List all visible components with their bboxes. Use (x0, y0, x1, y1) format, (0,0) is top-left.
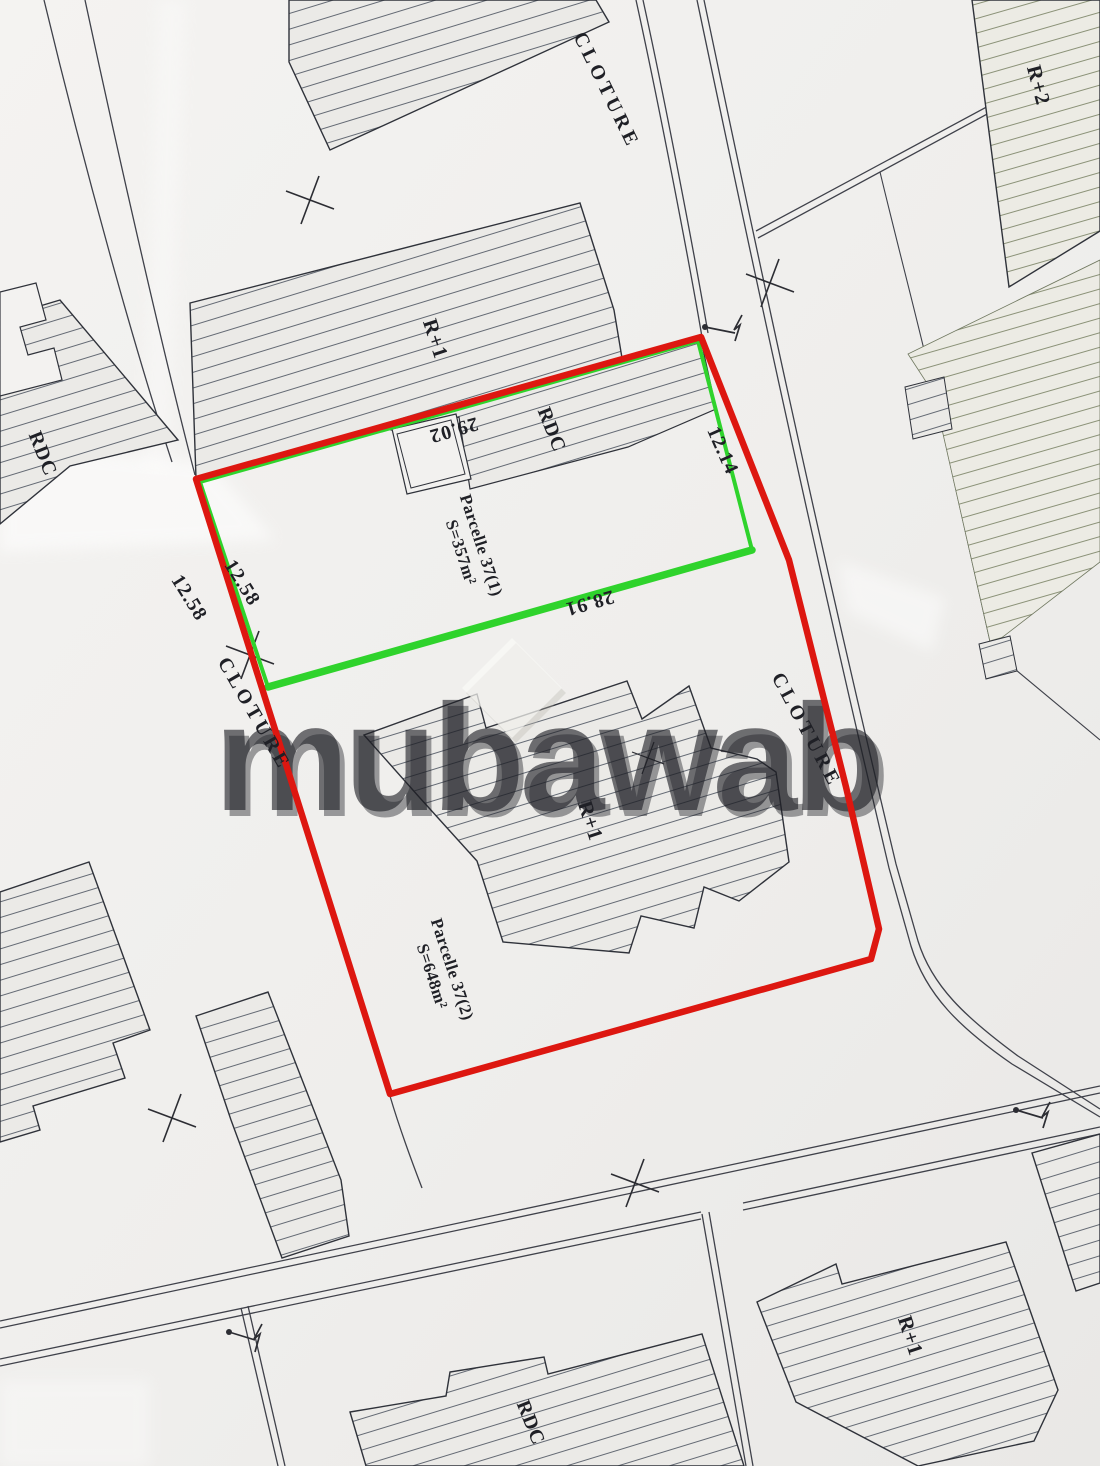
crease (0, 1380, 150, 1466)
entry-step (905, 377, 952, 439)
cadastral-site-plan: mubawab mubawab CLOTURE R+2 R+1 RDC 29.0… (0, 0, 1100, 1466)
site-plan-svg: mubawab mubawab CLOTURE R+2 R+1 RDC 29.0… (0, 0, 1100, 1466)
entry-step (979, 636, 1017, 679)
